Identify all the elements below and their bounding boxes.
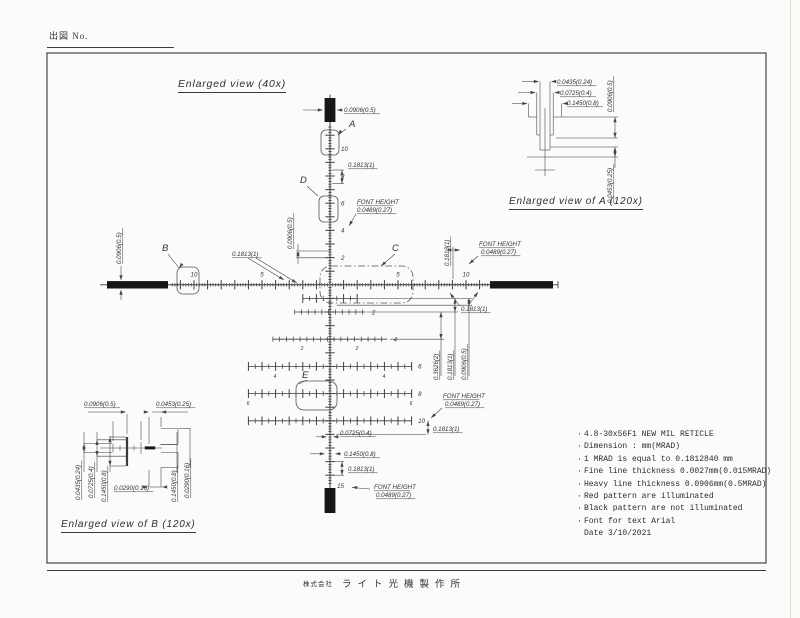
dimension-label: 0.0489(0.27) [376,492,415,499]
callout-label: A [348,119,355,130]
dimension-line [307,186,318,196]
axis-numeral: 2 [340,255,345,262]
dimension-label: 0.0489(0.27) [376,492,411,499]
axis-numeral: 10 [341,146,348,153]
dimension-label: 0.0290(0.16) [114,485,153,492]
callout-label: B [162,243,169,254]
dimension-label: 0.1450(0.8) [344,451,380,458]
dimension-arrowhead [95,451,98,456]
note-bullet: · [577,491,584,503]
note-item: ·4.8-30x56F1 NEW MIL RETICLE [577,429,777,441]
dimension-line [256,258,297,283]
dimension-arrowhead [340,470,343,475]
axis-numeral: 10 [463,272,470,279]
note-item: ·Red pattern are illuminated [577,491,777,503]
dimension-label: 0.1813(1) [444,236,451,266]
callout-label: C [392,243,399,254]
heavy-bar-bottom [325,488,336,513]
dimension-arrowhead [337,130,343,136]
dimension-label: 0.1813(1) [433,426,463,433]
dimension-label: FONT HEIGHT [357,199,400,206]
row-sub-numeral: 2 [355,346,359,352]
dimension-label: 0.0906(0.5) [287,213,294,249]
dimension-label: 0.0489(0.27) [481,249,516,256]
dimension-label: 0.1813(1) [348,162,378,169]
dimension-arrowhead [337,108,342,111]
drawing-number-underline [47,47,174,48]
dimension-label: 0.0725(0.4) [340,430,372,437]
detail-b-heavy-dash [145,446,155,449]
dimension-arrowhead [82,447,85,452]
dimension-label: 0.1450(0.8) [171,466,178,502]
dimension-arrowhead [119,290,122,295]
note-bullet: · [577,454,584,466]
callout-label: D [300,175,307,186]
axis-numeral: 15 [337,483,344,490]
dimension-label: 0.0725(0.4) [560,90,592,97]
notes-list: ·4.8-30x56F1 NEW MIL RETICLE·Dimension :… [577,429,777,528]
dimension-label: 0.1813(1) [444,240,451,267]
dimension-label: 0.1450(0.8) [567,100,599,107]
axis-numeral: 10 [191,272,198,279]
dimension-arrowhead [108,461,111,466]
callout-label: B [162,243,169,254]
dimension-label: FONT HEIGHT [443,393,486,400]
dimension-label: 0.1813(1) [447,354,454,381]
axis-numeral: 2 [340,255,345,262]
note-text: Dimension : mm(MRAD) [584,442,680,451]
dimension-label: 0.1813(1) [447,350,454,380]
dimension-arrowhead [551,80,556,83]
dimension-label: 0.0290(0.16) [114,485,149,492]
dimension-label: 0.0725(0.4) [560,90,596,97]
row-number: 8 [418,391,422,398]
row-sub-numeral: 6 [247,401,250,407]
dimension-label: 0.0489(0.27) [445,401,484,408]
title-block-rule [47,570,766,571]
dimension-arrowhead [348,221,353,227]
heavy-bar-left [107,281,168,288]
axis-numeral: 15 [337,483,344,490]
dimension-arrowhead [178,263,184,269]
row-sub-numeral: 2 [300,346,304,352]
row-number: 8 [418,391,422,398]
axis-numeral: 10 [341,146,348,153]
dimension-arrowhead [613,147,616,152]
dimension-label: FONT HEIGHT [374,484,417,491]
axis-numeral: 5 [396,272,400,279]
footer-company: 株式会社ライト光機製作所 [303,574,466,592]
paper-edge-line [790,0,791,618]
callout-label: E [302,370,309,381]
row-number: 2 [371,309,376,316]
dimension-arrowhead [613,133,616,138]
dimension-label: 0.0435(0.24) [557,79,596,86]
dimension-label: 0.3626(2) [433,350,440,380]
dimension-label: 0.0290(0.16) [184,459,191,498]
row-sub-numeral: 4 [274,374,277,380]
note-bullet: · [577,516,584,528]
dimension-label: FONT HEIGHT [479,241,522,248]
drawing-sheet: 24681010864210551015224466ABCDE0.0906(0.… [0,0,800,618]
dimension-arrowhead [279,276,285,282]
dimension-label: 0.0906(0.5) [116,232,123,264]
dimension-label: 0.1813(1) [348,162,375,169]
heavy-bar-right [490,281,553,288]
dimension-label: 0.0906(0.5) [461,344,468,380]
dimension-arrowhead [453,307,456,312]
dimension-label: 0.1450(0.8) [567,100,603,107]
dimension-arrowhead [162,485,167,488]
dimension-label: 0.1450(0.8) [171,470,178,502]
dimension-arrowhead [322,435,327,438]
dimension-label: 0.0453(0.25) [156,401,195,408]
row-number: 6 [418,364,422,371]
dimension-label: 0.0906(0.5) [287,217,294,249]
dimension-label: 0.1813(1) [461,306,491,313]
note-text: Black pattern are not illuminated [584,504,742,513]
axis-numeral: 5 [260,272,264,279]
note-date: Date 3/10/2021 [584,528,777,540]
dimension-label: 0.0906(0.5) [461,348,468,380]
dimension-label: 0.0725(0.4) [88,462,95,498]
dimension-arrowhead [439,312,442,317]
row-number: 10 [418,418,425,425]
row-number: 4 [394,337,398,344]
dimension-label: 0.0489(0.27) [481,249,520,256]
dimension-arrowhead [161,410,166,413]
dimension-label: 0.0906(0.5) [607,76,614,112]
callout-label: E [302,370,309,381]
dimension-label: 0.0906(0.5) [116,228,123,264]
axis-numeral: 10 [191,272,198,279]
axis-numeral: 6 [341,201,345,208]
dimension-arrowhead [318,108,323,111]
dimension-label: 0.0489(0.27) [357,207,392,214]
row-sub-numeral: 2 [355,346,359,352]
dimension-label: 0.1450(0.8) [344,451,376,458]
note-bullet: · [577,429,584,441]
dimension-arrowhead [144,410,149,413]
axis-numeral: 4 [341,228,345,235]
heavy-bar-top [325,98,336,122]
callout-label: D [300,175,307,186]
dimension-label: 0.0906(0.5) [84,401,120,408]
title-enlarged-view: Enlarged view (40x) [178,78,286,93]
dimension-label: 0.3626(2) [433,354,440,381]
dimension-arrowhead [340,462,343,467]
dimension-label: 0.0906(0.5) [344,107,376,114]
dimension-arrowhead [554,91,559,94]
row-sub-numeral: 6 [410,401,413,407]
row-number: 6 [418,364,422,371]
dimension-label: FONT HEIGHT [357,199,400,206]
dimension-label: 0.0435(0.24) [557,79,592,86]
dimension-label: 0.1450(0.8) [101,470,108,502]
note-item: ·Dimension : mm(MRAD) [577,441,777,453]
dimension-arrowhead [95,440,98,445]
note-bullet: · [577,466,584,478]
dimension-arrowhead [426,429,429,434]
dimension-label: 0.1450(0.8) [101,466,108,502]
dimension-label: 0.1813(1) [348,466,378,473]
dimension-arrowhead [531,91,536,94]
row-sub-numeral: 6 [247,401,250,407]
company-name: ライト光機製作所 [342,579,466,590]
title-enlarged-view-a: Enlarged view of A (120x) [509,196,643,210]
note-text: Heavy line thickness 0.0906mm(0.5MRAD) [584,480,766,489]
dimension-label: 0.0290(0.16) [184,463,191,498]
note-text: Font for text Arial [584,517,675,526]
callout-box [319,196,338,222]
dimension-label: FONT HEIGHT [479,241,522,248]
dimension-label: 0.0489(0.27) [357,207,396,214]
callout-label: C [392,243,399,254]
dimension-label: 0.0435(0.24) [75,465,82,500]
row-sub-numeral: 4 [383,374,386,380]
axis-numeral: 5 [260,272,264,279]
row-number: 2 [371,309,376,316]
row-sub-numeral: 4 [383,374,386,380]
axis-numeral: 6 [341,201,345,208]
company-prefix: 株式会社 [303,581,333,588]
dimension-label: FONT HEIGHT [374,484,417,491]
dimension-arrowhead [333,435,338,438]
note-text: Red pattern are illuminated [584,492,714,501]
dimension-arrowhead [474,291,480,297]
note-bullet: · [577,479,584,491]
row-sub-numeral: 6 [410,401,413,407]
dimension-arrowhead [335,452,340,455]
dimension-arrowhead [426,421,429,426]
title-enlarged-view-b: Enlarged view of B (120x) [61,519,196,533]
dimension-label: 0.0725(0.4) [88,466,95,498]
dimension-label: 0.1813(1) [232,251,262,258]
note-text: Fine line thickness 0.0027mm(0.015MRAD) [584,467,771,476]
dimension-label: 0.0906(0.5) [344,107,380,114]
row-sub-numeral: 2 [300,346,304,352]
axis-numeral: 5 [396,272,400,279]
dimension-label: FONT HEIGHT [443,393,486,400]
notes-block: ·4.8-30x56F1 NEW MIL RETICLE·Dimension :… [577,429,777,541]
dimension-arrowhead [455,248,460,251]
note-item: ·Fine line thickness 0.0027mm(0.015MRAD) [577,466,777,478]
note-item: ·Font for text Arial [577,516,777,528]
row-sub-numeral: 4 [274,374,277,380]
dimension-label: 0.0435(0.24) [75,461,82,500]
dimension-label: 0.1813(1) [232,251,259,258]
note-text: 1 MRAD is equal to 0.1812840 mm [584,455,733,464]
dimension-label: 0.0725(0.4) [340,430,376,437]
dimension-line [248,258,284,280]
dimension-arrowhead [121,410,126,413]
dimension-label: 0.1813(1) [348,466,375,473]
axis-numeral: 4 [341,228,345,235]
dimension-arrowhead [534,80,539,83]
dimension-arrowhead [439,334,442,339]
dimension-label: 0.0489(0.27) [445,401,480,408]
dimension-label: 0.1813(1) [433,426,460,433]
dimension-arrowhead [613,152,616,157]
drawing-number-label: 出図 No. [49,29,89,42]
dimension-arrowhead [119,275,122,280]
note-item: ·Black pattern are not illuminated [577,503,777,515]
dimension-arrowhead [522,102,527,105]
dimension-arrowhead [352,486,357,489]
note-bullet: · [577,503,584,515]
note-bullet: · [577,441,584,453]
row-number: 10 [418,418,425,425]
note-item: ·Heavy line thickness 0.0906mm(0.5MRAD) [577,479,777,491]
axis-numeral: 10 [463,272,470,279]
dimension-arrowhead [613,117,616,122]
dimension-label: 0.1813(1) [461,306,488,313]
dimension-line [168,254,179,268]
callout-label: A [348,119,355,130]
dimension-label: 0.0906(0.5) [84,401,116,408]
note-item: ·1 MRAD is equal to 0.1812840 mm [577,454,777,466]
dimension-arrowhead [320,452,325,455]
note-text: 4.8-30x56F1 NEW MIL RETICLE [584,430,714,439]
dimension-arrowhead [340,178,343,183]
row-number: 4 [394,337,398,344]
dimension-label: 0.0906(0.5) [607,80,614,112]
dimension-label: 0.0453(0.25) [156,401,191,408]
